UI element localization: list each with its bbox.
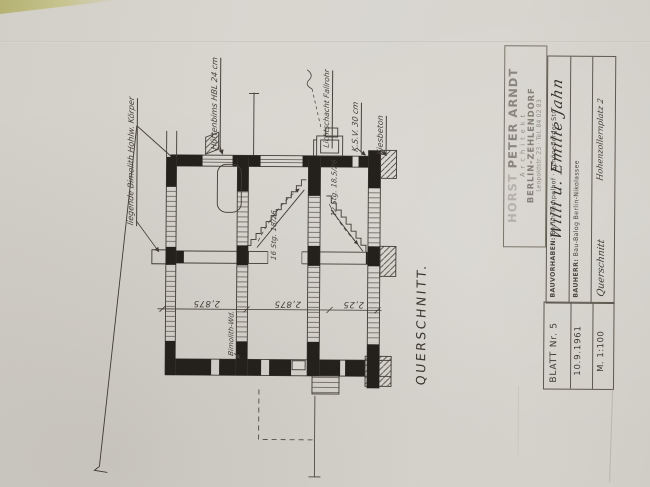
drawing-sheet: liegende Bimolith Hohlw. Körper Hüttenbi… bbox=[0, 0, 650, 487]
section-title: QUERSCHNITT. bbox=[415, 262, 428, 386]
foundation-block-2 bbox=[380, 246, 396, 276]
light-shaft-bottom bbox=[312, 376, 339, 394]
stairs bbox=[247, 179, 366, 252]
table-divider bbox=[569, 57, 572, 303]
cellar-door-detail bbox=[292, 361, 305, 370]
stair-label-right: 12 Stg. 18,5/26 bbox=[331, 159, 338, 217]
annotation-lichtschacht: Lichtschacht Fallrohr bbox=[323, 69, 333, 149]
sheet-date: 10.9.1961 bbox=[574, 325, 583, 376]
wall-middle bbox=[152, 250, 378, 266]
sheet-number: BLATT Nr. 5 bbox=[550, 322, 559, 382]
floor-slabs bbox=[165, 131, 397, 389]
annotation-bimolith-wand: Bimolith-Wd. bbox=[228, 310, 235, 356]
table-divider bbox=[592, 303, 594, 389]
client-row: BAUHERR: Bau-Balog Berlin-Nikolassee bbox=[574, 160, 581, 298]
dimension-storey-bottom: 2,25 bbox=[339, 299, 369, 309]
wall-bottom bbox=[165, 355, 391, 395]
table-divider bbox=[591, 57, 594, 303]
project-handwritten: Willi u. Emilie Jahn bbox=[550, 77, 566, 241]
dimension-storey-middle: 2,875 bbox=[273, 299, 303, 309]
stamp-address: Leopoldstr. 23 · Tel. 84 02 83 bbox=[536, 49, 544, 241]
annotation-ksv: K.S.V. 30 cm bbox=[352, 101, 362, 153]
architect-stamp: HORST PETER ARNDT A r c h i t e k t BERL… bbox=[506, 49, 545, 241]
dimension-storey-top: 2,875 bbox=[192, 298, 222, 308]
client-handwritten: Hohenzollernplatz 2 bbox=[596, 98, 605, 182]
photographed-drawing: liegende Bimolith Hohlw. Körper Hüttenbi… bbox=[0, 0, 650, 487]
excavation-outline bbox=[258, 390, 321, 477]
annotation-liegende-bimolith: liegende Bimolith Hohlw. Körper bbox=[127, 96, 138, 226]
sheet-scale: M. 1:100 bbox=[597, 331, 606, 372]
drawing-title-handwritten: Querschnitt bbox=[597, 239, 607, 298]
table-divider bbox=[570, 303, 572, 389]
walk-line-left bbox=[258, 188, 299, 241]
annotation-kiesbeton: Kiesbeton bbox=[377, 115, 387, 156]
wall-top bbox=[171, 155, 379, 167]
annotation-huettenbims: Hüttenbims HBL 24 cm bbox=[211, 57, 222, 151]
stair-label-left: 16 Stg. 18/26 bbox=[271, 210, 278, 261]
